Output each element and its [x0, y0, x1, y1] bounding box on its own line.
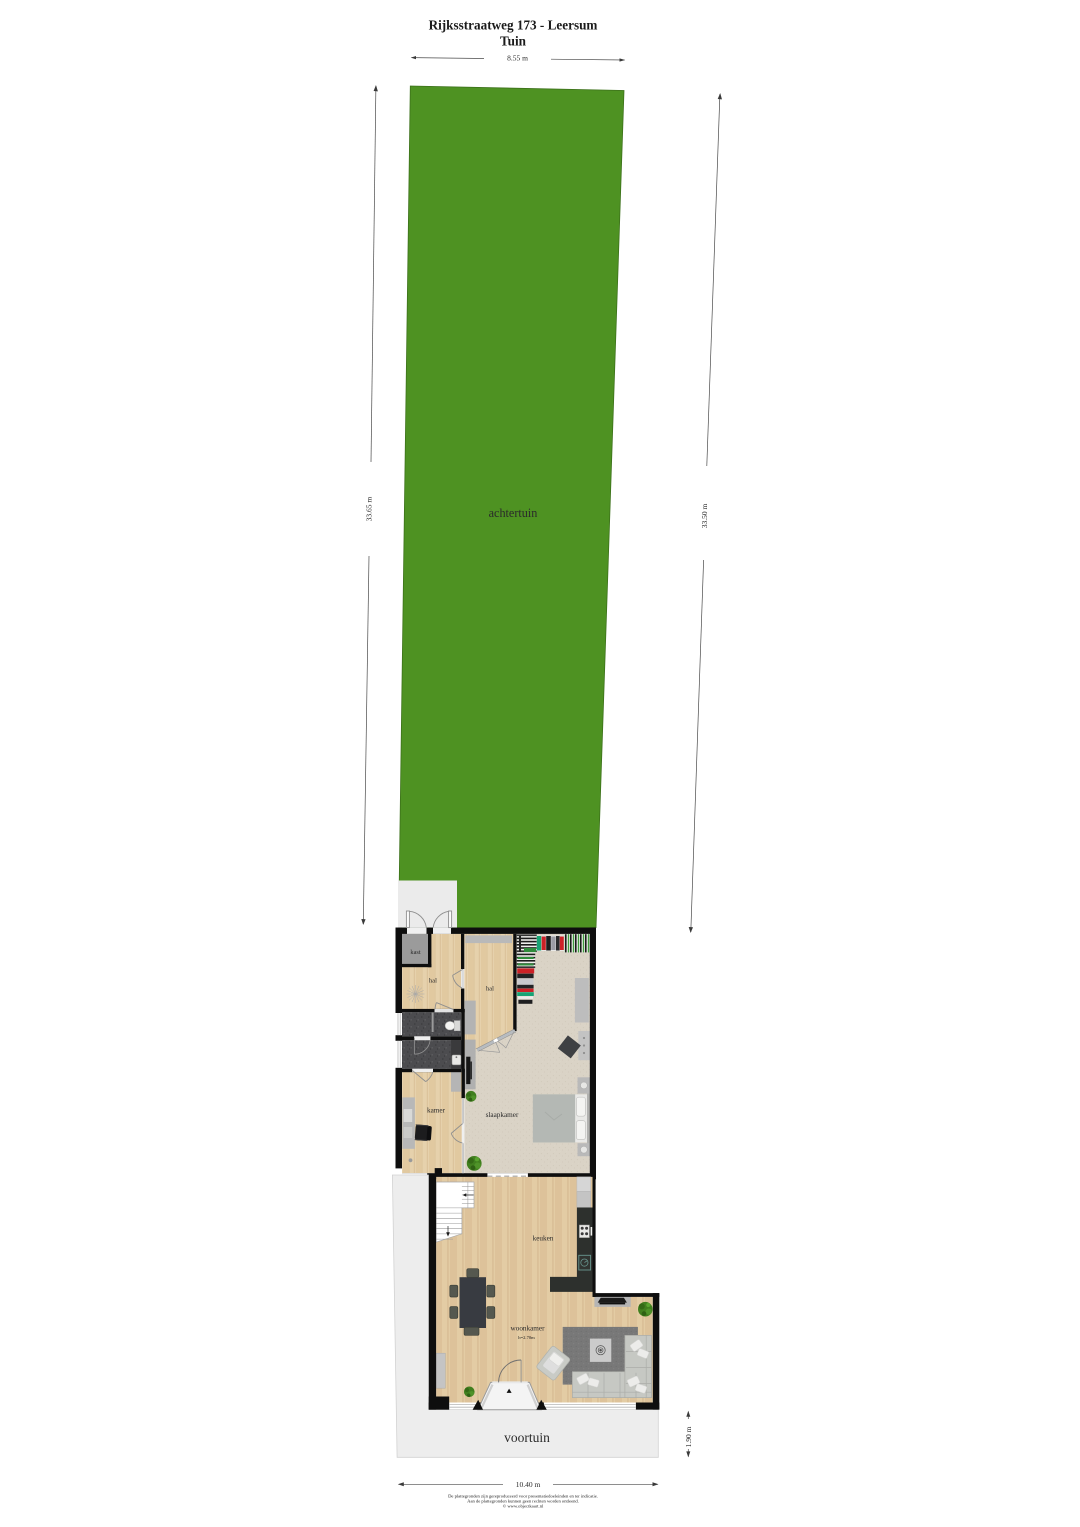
svg-text:33.65 m: 33.65 m: [365, 497, 374, 522]
svg-text:achtertuin: achtertuin: [489, 506, 538, 520]
svg-text:h=2.70m: h=2.70m: [518, 1335, 535, 1340]
svg-text:© www.objectkaart.nl: © www.objectkaart.nl: [503, 1504, 544, 1509]
svg-text:10.40 m: 10.40 m: [516, 1480, 541, 1489]
svg-text:woonkamer: woonkamer: [511, 1325, 546, 1333]
svg-text:Tuin: Tuin: [500, 33, 527, 48]
svg-text:Rijksstraatweg 173 - Leersum: Rijksstraatweg 173 - Leersum: [429, 18, 598, 33]
svg-text:hal: hal: [429, 978, 437, 985]
svg-text:hal: hal: [486, 986, 494, 993]
svg-text:kast: kast: [410, 949, 420, 956]
svg-text:33.50 m: 33.50 m: [700, 504, 709, 529]
svg-text:voortuin: voortuin: [504, 1430, 550, 1445]
svg-text:kamer: kamer: [427, 1107, 446, 1115]
svg-text:1.90 m: 1.90 m: [684, 1426, 693, 1447]
svg-text:8.55 m: 8.55 m: [507, 53, 528, 62]
svg-text:slaapkamer: slaapkamer: [486, 1111, 519, 1119]
svg-text:keuken: keuken: [533, 1235, 554, 1243]
